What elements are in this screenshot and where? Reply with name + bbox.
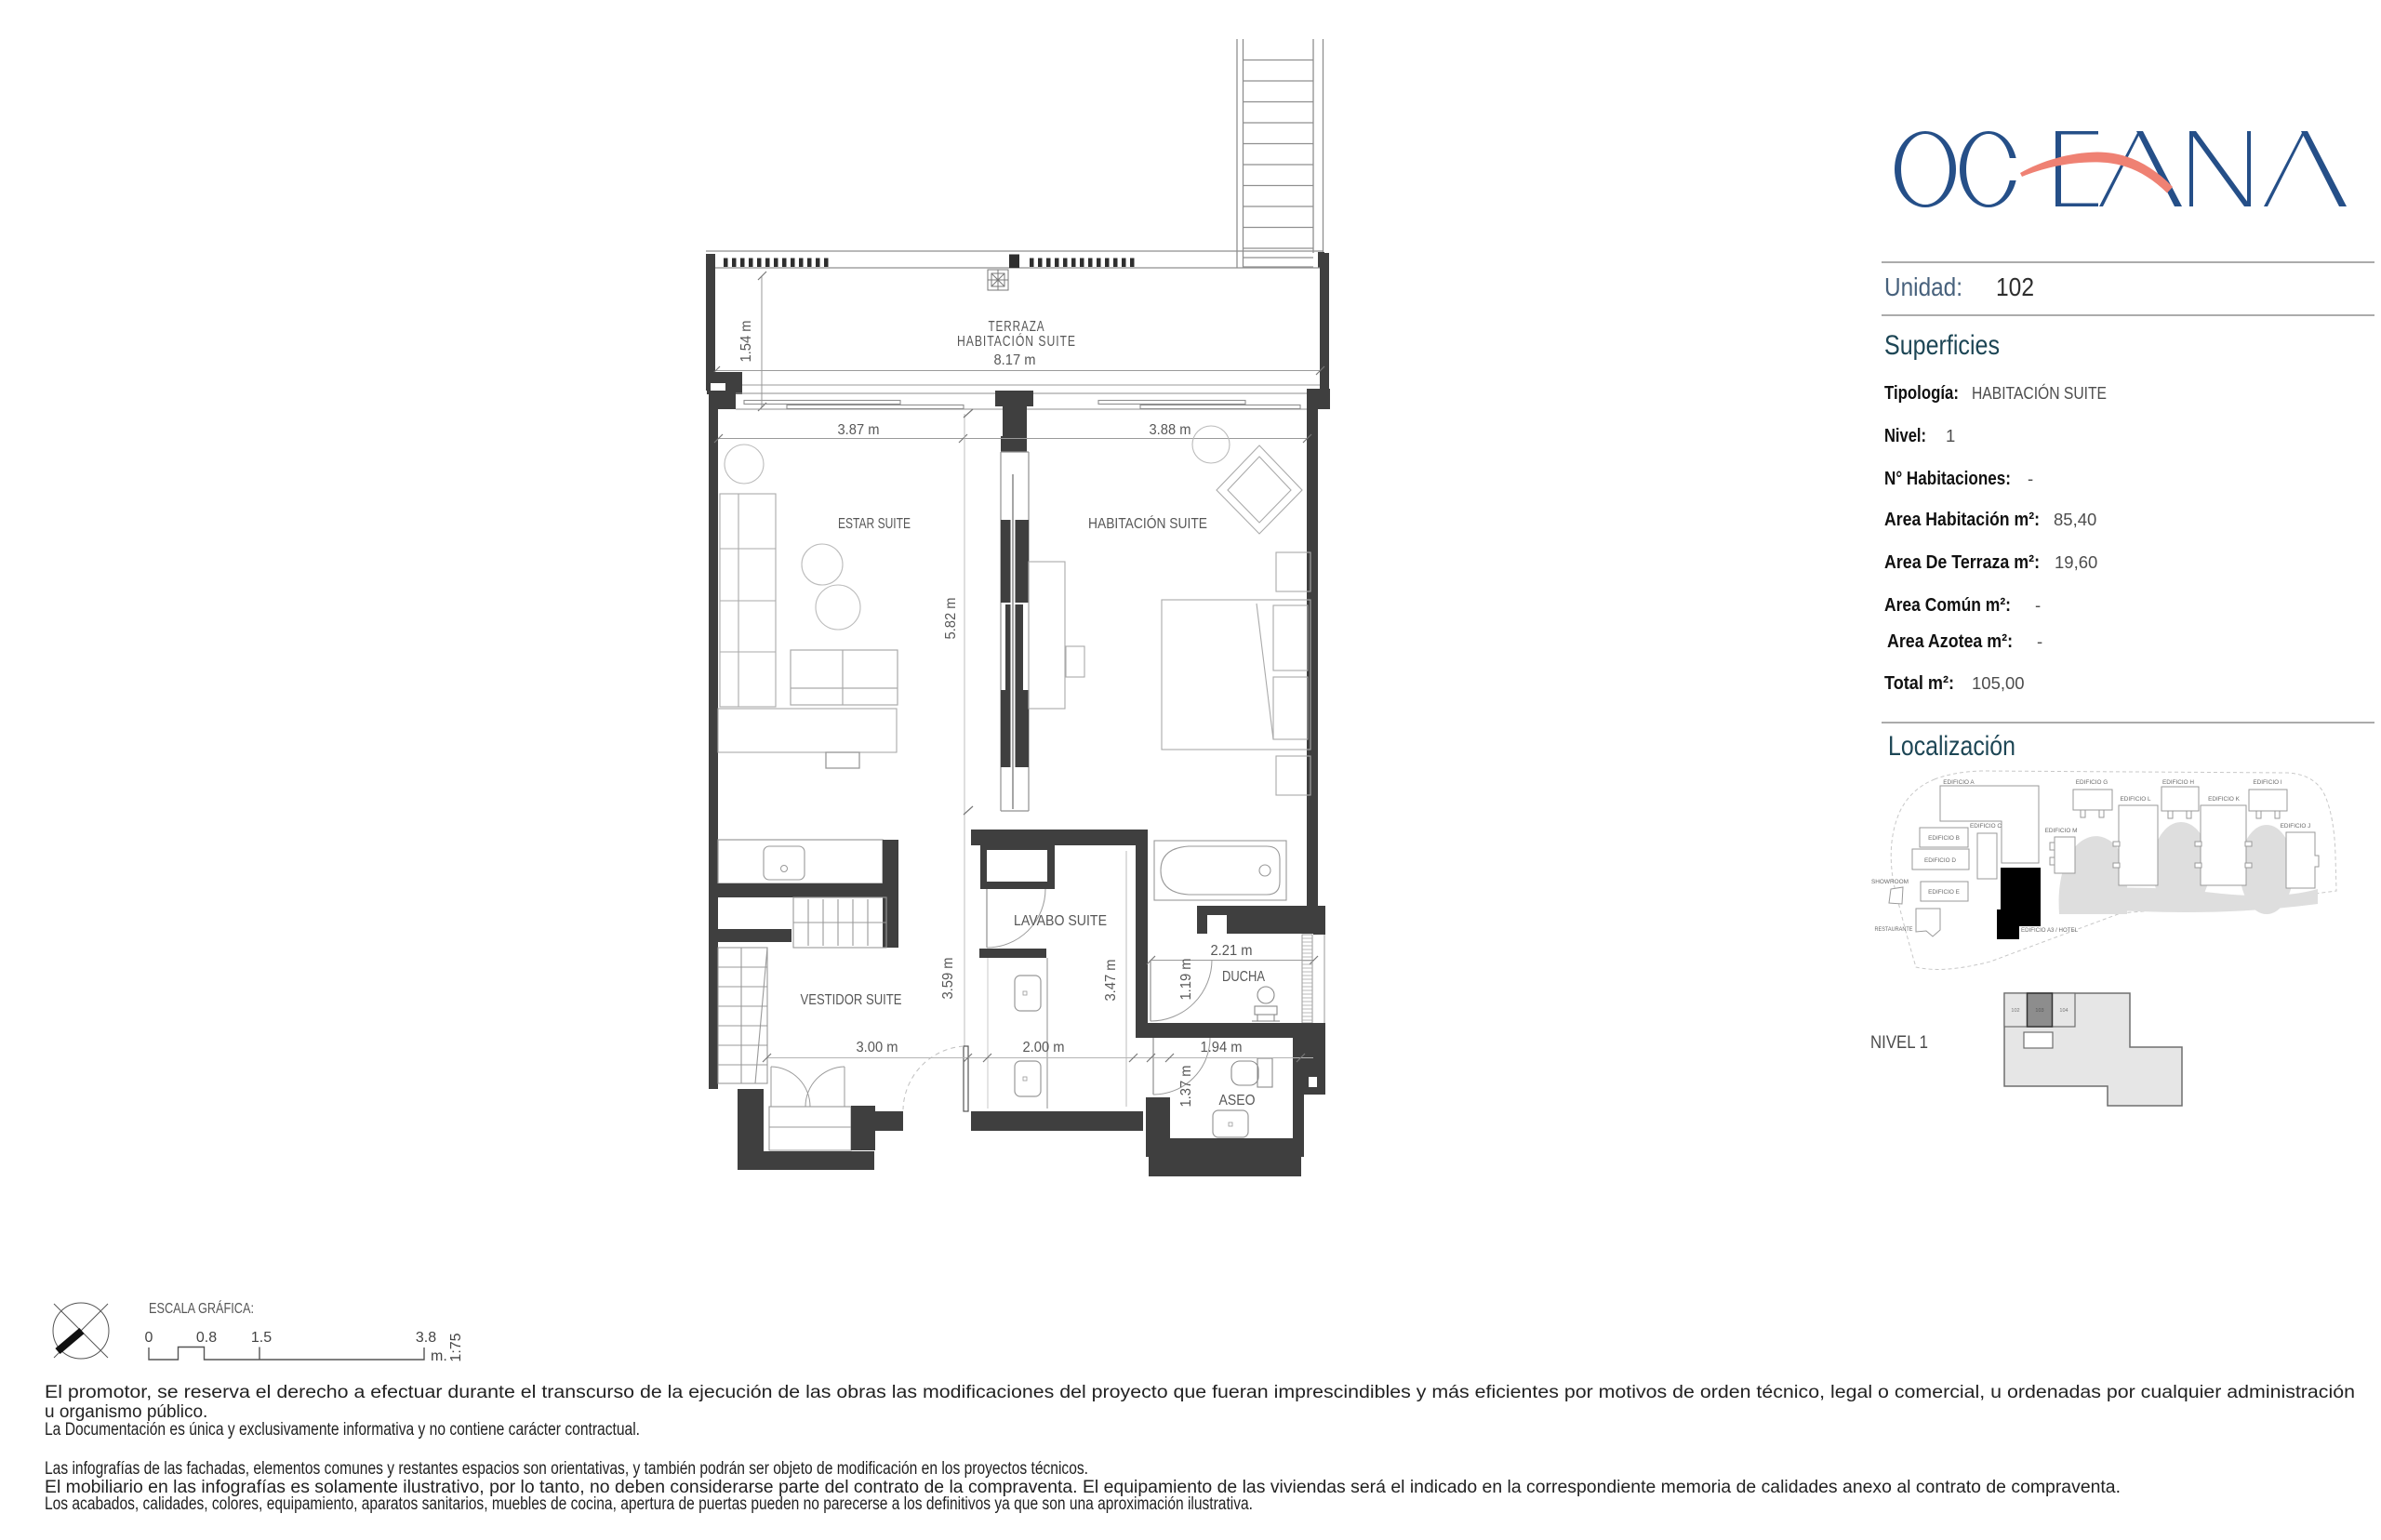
svg-text:85,40: 85,40 xyxy=(2054,510,2096,529)
svg-text:0.8: 0.8 xyxy=(196,1330,217,1346)
svg-text:NIVEL 1: NIVEL 1 xyxy=(1870,1033,1928,1053)
svg-text:EDIFICIO H: EDIFICIO H xyxy=(2162,779,2194,786)
svg-text:HABITACIÓN SUITE: HABITACIÓN SUITE xyxy=(957,334,1076,350)
svg-text:2.00 m: 2.00 m xyxy=(1023,1040,1065,1055)
svg-text:3.47 m: 3.47 m xyxy=(1103,960,1119,1002)
svg-text:19,60: 19,60 xyxy=(2055,552,2097,572)
svg-text:LAVABO SUITE: LAVABO SUITE xyxy=(1014,913,1107,929)
svg-text:EDIFICIO M: EDIFICIO M xyxy=(2045,828,2078,834)
svg-text:Tipología:: Tipología: xyxy=(1884,383,1959,404)
svg-text:1.94 m: 1.94 m xyxy=(1201,1040,1243,1055)
svg-text:3.87 m: 3.87 m xyxy=(838,422,880,438)
svg-text:102: 102 xyxy=(2011,1008,2019,1014)
svg-text:Area Común m²:: Area Común m²: xyxy=(1884,595,2011,616)
svg-text:3.00 m: 3.00 m xyxy=(857,1040,898,1055)
svg-text:EDIFICIO A3 / HOTEL: EDIFICIO A3 / HOTEL xyxy=(2021,927,2078,934)
svg-text:HABITACIÓN SUITE: HABITACIÓN SUITE xyxy=(1972,383,2107,403)
svg-text:0: 0 xyxy=(145,1330,153,1346)
svg-text:ESCALA GRÁFICA:: ESCALA GRÁFICA: xyxy=(149,1301,254,1317)
svg-text:ESTAR SUITE: ESTAR SUITE xyxy=(838,516,911,532)
svg-text:EDIFICIO J: EDIFICIO J xyxy=(2281,823,2311,830)
svg-text:Total m²:: Total m²: xyxy=(1884,673,1954,694)
svg-text:105,00: 105,00 xyxy=(1972,673,2025,693)
svg-text:SHOWROOM: SHOWROOM xyxy=(1871,879,1909,885)
svg-text:Area Habitación m²:: Area Habitación m²: xyxy=(1884,510,2040,530)
svg-text:Los acabados, calidades, color: Los acabados, calidades, colores, equipa… xyxy=(45,1494,1253,1514)
svg-text:N° Habitaciones:: N° Habitaciones: xyxy=(1884,469,2011,489)
svg-text:u organismo público.: u organismo público. xyxy=(45,1402,207,1422)
svg-text:5.82 m: 5.82 m xyxy=(943,598,959,640)
svg-text:ASEO: ASEO xyxy=(1219,1093,1256,1109)
svg-text:-: - xyxy=(2037,631,2042,651)
svg-text:RESTAURANTE: RESTAURANTE xyxy=(1875,926,1913,933)
svg-text:103: 103 xyxy=(2035,1008,2043,1014)
svg-text:m.: m. xyxy=(431,1348,447,1364)
svg-text:1.37 m: 1.37 m xyxy=(1178,1066,1194,1108)
svg-text:1.19 m: 1.19 m xyxy=(1178,959,1194,1001)
svg-text:3.59 m: 3.59 m xyxy=(940,958,956,1000)
svg-text:Nivel:: Nivel: xyxy=(1884,426,1926,446)
svg-text:EDIFICIO C: EDIFICIO C xyxy=(1970,823,2002,830)
svg-text:-: - xyxy=(2035,595,2041,615)
svg-text:EDIFICIO B: EDIFICIO B xyxy=(1928,835,1960,842)
svg-text:EDIFICIO D: EDIFICIO D xyxy=(1924,857,1956,864)
svg-text:1.54 m: 1.54 m xyxy=(738,321,754,363)
svg-text:EDIFICIO L: EDIFICIO L xyxy=(2120,796,2150,803)
svg-text:3.88 m: 3.88 m xyxy=(1150,422,1191,438)
svg-text:EDIFICIO A: EDIFICIO A xyxy=(1943,779,1975,786)
svg-text:1.5: 1.5 xyxy=(251,1330,272,1346)
svg-text:-: - xyxy=(2028,469,2033,488)
svg-text:1:75: 1:75 xyxy=(448,1333,464,1361)
svg-text:VESTIDOR SUITE: VESTIDOR SUITE xyxy=(801,992,902,1008)
svg-text:102: 102 xyxy=(1996,272,2034,301)
svg-text:Area Azotea m²:: Area Azotea m²: xyxy=(1887,631,2013,652)
svg-text:Unidad:: Unidad: xyxy=(1884,272,1962,301)
svg-text:Localización: Localización xyxy=(1888,731,2015,762)
svg-text:3.8: 3.8 xyxy=(416,1330,436,1346)
svg-text:EDIFICIO E: EDIFICIO E xyxy=(1928,889,1960,896)
svg-text:EDIFICIO G: EDIFICIO G xyxy=(2076,779,2108,786)
svg-text:8.17 m: 8.17 m xyxy=(994,352,1036,368)
svg-text:La Documentación es única y ex: La Documentación es única y exclusivamen… xyxy=(45,1420,640,1440)
svg-text:Las infografías de las fachada: Las infografías de las fachadas, element… xyxy=(45,1459,1088,1479)
svg-text:1: 1 xyxy=(1946,426,1955,445)
svg-text:EDIFICIO I: EDIFICIO I xyxy=(2253,779,2281,786)
svg-text:Superficies: Superficies xyxy=(1884,330,2000,361)
svg-text:EDIFICIO K: EDIFICIO K xyxy=(2208,796,2240,803)
svg-text:2.21 m: 2.21 m xyxy=(1211,943,1253,959)
svg-text:El promotor, se reserva el der: El promotor, se reserva el derecho a efe… xyxy=(45,1383,2355,1402)
svg-text:HABITACIÓN SUITE: HABITACIÓN SUITE xyxy=(1088,516,1207,532)
svg-text:TERRAZA: TERRAZA xyxy=(989,319,1045,335)
svg-text:DUCHA: DUCHA xyxy=(1222,969,1266,985)
svg-text:Area De Terraza m²:: Area De Terraza m²: xyxy=(1884,552,2040,573)
svg-text:104: 104 xyxy=(2059,1008,2068,1014)
